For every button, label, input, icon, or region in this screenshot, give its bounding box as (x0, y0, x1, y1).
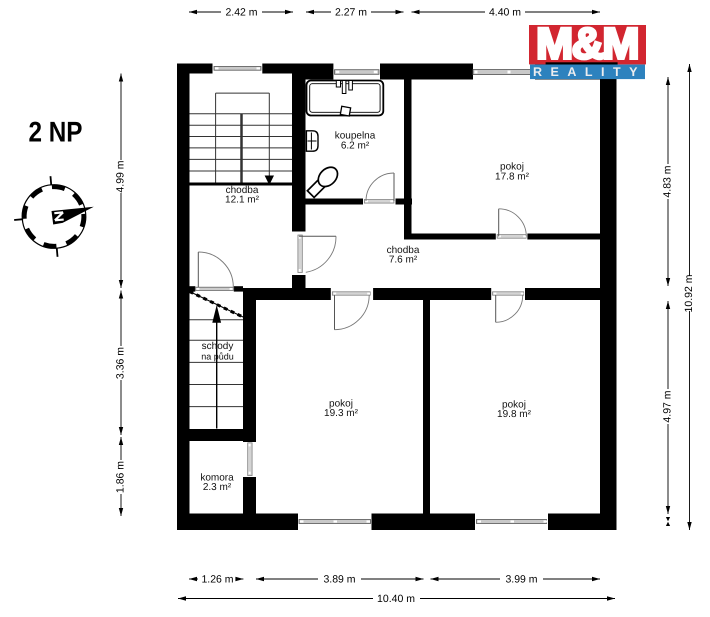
svg-text:19.3 m²: 19.3 m² (324, 408, 359, 419)
svg-text:1.86 m: 1.86 m (114, 461, 126, 493)
svg-text:2.3 m²: 2.3 m² (203, 482, 232, 493)
svg-text:2.42 m: 2.42 m (225, 7, 257, 19)
svg-text:2.27 m: 2.27 m (335, 7, 367, 19)
svg-text:3.89 m: 3.89 m (323, 574, 355, 586)
svg-text:19.8 m²: 19.8 m² (497, 409, 532, 420)
svg-text:3.99 m: 3.99 m (505, 574, 537, 586)
svg-text:M&M: M&M (536, 20, 638, 69)
svg-text:17.8 m²: 17.8 m² (495, 172, 530, 183)
svg-text:12.1 m²: 12.1 m² (225, 195, 260, 206)
svg-text:na půdu: na půdu (201, 352, 234, 362)
svg-text:4.40 m: 4.40 m (489, 7, 521, 19)
svg-text:2 NP: 2 NP (29, 117, 83, 149)
svg-text:4.83 m: 4.83 m (661, 165, 673, 197)
svg-text:6.2 m²: 6.2 m² (341, 141, 370, 152)
svg-text:7.6 m²: 7.6 m² (389, 255, 418, 266)
svg-text:4.99 m: 4.99 m (114, 160, 126, 192)
svg-text:10.92 m: 10.92 m (683, 274, 695, 312)
svg-text:4.97 m: 4.97 m (661, 390, 673, 422)
svg-text:1.26 m: 1.26 m (201, 574, 233, 586)
svg-text:3.36 m: 3.36 m (114, 347, 126, 379)
svg-text:10.40 m: 10.40 m (377, 593, 415, 605)
